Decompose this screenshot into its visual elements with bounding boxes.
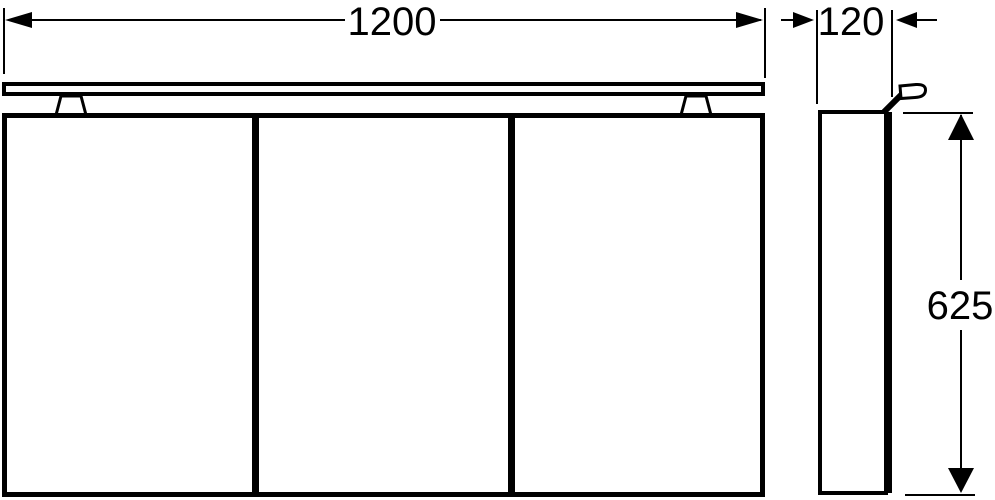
- cabinet-front-body: [5, 116, 763, 495]
- front-view: [4, 84, 763, 495]
- depth-arrow-left: [793, 12, 814, 28]
- technical-drawing-page: 1200 120 625: [0, 0, 995, 500]
- depth-dimension-label: 120: [818, 0, 885, 44]
- mirror-cabinet-drawing: 1200 120 625: [0, 0, 995, 500]
- height-arrow-down: [948, 468, 974, 493]
- depth-arrow-right: [896, 12, 917, 28]
- width-dimension: 1200: [4, 0, 765, 78]
- cabinet-side-body: [820, 112, 886, 493]
- height-dimension: 625: [903, 113, 993, 495]
- width-arrow-left: [5, 12, 32, 28]
- side-view: [820, 84, 926, 493]
- shelf-bracket-right: [681, 96, 711, 115]
- light-shelf: [4, 84, 763, 94]
- light-fixture-head: [900, 84, 926, 98]
- width-dimension-label: 1200: [348, 0, 437, 44]
- width-arrow-right: [736, 12, 763, 28]
- shelf-bracket-left: [56, 96, 86, 115]
- height-arrow-up: [948, 114, 974, 140]
- height-dimension-label: 625: [927, 284, 994, 328]
